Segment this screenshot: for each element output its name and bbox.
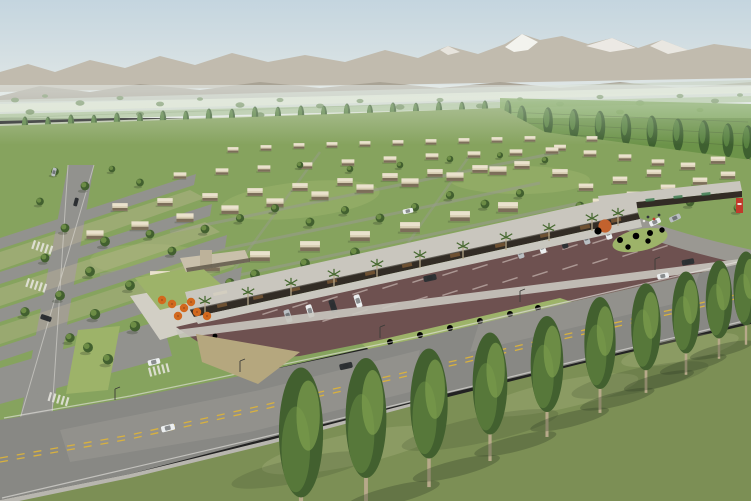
shrubs-item	[594, 227, 601, 234]
houses-item	[582, 150, 596, 157]
houses-item	[256, 165, 270, 172]
shrubs-item	[645, 238, 650, 243]
houses-item	[471, 165, 488, 174]
render-canvas	[0, 0, 751, 501]
houses-item	[226, 147, 238, 153]
shrubs-item	[633, 233, 640, 240]
houses-item	[340, 159, 354, 166]
houses-item	[172, 172, 186, 179]
houses-item	[111, 203, 128, 212]
atmospheric-haze	[0, 85, 751, 145]
houses-item	[424, 153, 438, 160]
houses-item	[426, 169, 443, 178]
houses-item	[398, 222, 420, 233]
umbrellas-item	[168, 300, 176, 308]
umbrellas-item	[193, 308, 201, 316]
houses-item	[355, 184, 374, 194]
houses-item	[488, 166, 507, 176]
shrubs-item	[647, 230, 653, 236]
houses-item	[248, 251, 270, 262]
houses-item	[381, 173, 398, 182]
umbrellas-item	[180, 304, 188, 312]
houses-item	[466, 151, 480, 158]
houses-item	[617, 154, 631, 161]
shrubs-item	[617, 237, 623, 243]
houses-item	[508, 149, 522, 156]
people-item	[658, 214, 661, 217]
houses-item	[298, 241, 320, 252]
monument-sign-text-band	[738, 203, 742, 205]
houses-item	[130, 221, 149, 231]
aerial-community-render	[0, 0, 751, 501]
houses-item	[214, 168, 228, 175]
houses-item	[175, 213, 194, 223]
houses-item	[551, 169, 568, 178]
umbrellas-item	[158, 296, 166, 304]
houses-item	[156, 198, 173, 207]
houses-item	[400, 178, 419, 188]
houses-item	[611, 177, 627, 185]
houses-item	[645, 170, 661, 178]
houses-item	[336, 178, 353, 187]
houses-item	[544, 147, 558, 154]
houses-item	[382, 156, 396, 163]
houses-item	[445, 172, 464, 182]
houses-item	[291, 183, 308, 192]
people-item	[643, 220, 646, 223]
houses-item	[220, 205, 239, 215]
umbrellas-item	[187, 298, 195, 306]
houses-item	[310, 191, 329, 201]
houses-item	[650, 159, 664, 166]
houses-item	[348, 231, 370, 242]
umbrellas-item	[203, 312, 211, 320]
houses-item	[709, 157, 725, 165]
houses-item	[577, 184, 593, 192]
shrubs-item	[659, 227, 664, 232]
houses-item	[719, 172, 735, 180]
houses-item	[259, 145, 271, 151]
houses-item	[246, 188, 263, 197]
houses-item	[691, 178, 707, 186]
monument-sign	[736, 198, 743, 213]
people-item	[653, 218, 656, 221]
shrubs-item	[625, 244, 630, 249]
houses-item	[513, 161, 530, 170]
houses-item	[679, 163, 695, 171]
houses-item	[496, 202, 518, 213]
houses-item	[85, 230, 104, 240]
houses-item	[448, 211, 470, 222]
people-item	[647, 216, 650, 219]
houses-item	[201, 193, 218, 202]
umbrellas-item	[174, 312, 182, 320]
